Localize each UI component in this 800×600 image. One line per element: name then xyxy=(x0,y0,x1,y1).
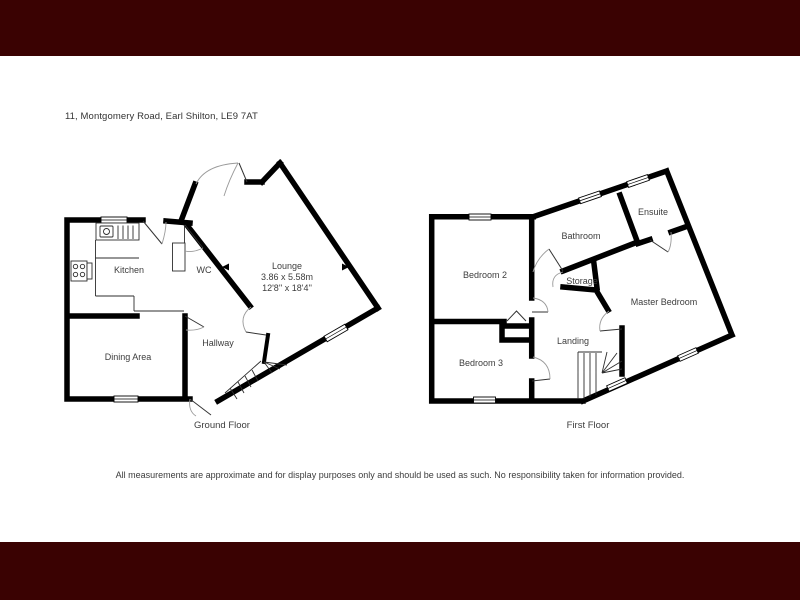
master-door-arc xyxy=(600,311,609,331)
kitchen-door-leaf xyxy=(143,221,162,244)
room-label-bedroom3: Bedroom 3 xyxy=(459,358,503,368)
kitchen-door-arc xyxy=(162,222,166,244)
ensuite-door-leaf xyxy=(650,240,668,252)
bathroom-door-arc xyxy=(533,249,549,272)
ground-floor-caption: Ground Floor xyxy=(194,420,250,431)
hob-side-unit xyxy=(87,263,92,279)
lounge-dimensions-metric: 3.86 x 5.58m xyxy=(261,272,313,282)
stairs-window xyxy=(607,378,628,392)
kitchen-window xyxy=(101,217,127,223)
front-door-leaf xyxy=(190,399,211,415)
kitchen-counter xyxy=(96,240,185,311)
stairs-stub-wall xyxy=(264,335,268,362)
lounge-dimensions-imperial: 12'8'' x 18'4'' xyxy=(262,283,312,293)
ground-floor-walls xyxy=(67,163,378,401)
lounge-hall-door-leaf xyxy=(246,332,266,335)
room-label-ensuite: Ensuite xyxy=(638,207,668,217)
bedroom2-door-arc xyxy=(533,298,548,312)
room-label-master-bedroom: Master Bedroom xyxy=(631,297,698,307)
bedroom3-door-arc xyxy=(533,357,550,379)
wc-door-leaf xyxy=(185,225,203,248)
room-label-lounge: Lounge xyxy=(272,261,302,271)
ground-floor-doors xyxy=(143,163,266,416)
room-label-bathroom: Bathroom xyxy=(561,231,600,241)
wc-fixture xyxy=(173,243,186,271)
bathroom-window xyxy=(579,191,602,204)
dining-door-arc xyxy=(186,327,204,330)
lounge-window xyxy=(324,324,348,342)
master-door-leaf xyxy=(600,329,622,331)
room-label-storage: Storage xyxy=(566,276,598,286)
room-label-hallway: Hallway xyxy=(202,338,234,348)
wc-door-arc xyxy=(185,248,203,252)
first-floor-plan: Bedroom 2 Bathroom Ensuite Storage Maste… xyxy=(432,171,732,431)
bedroom3-window xyxy=(474,397,496,403)
bathroom-door-leaf xyxy=(549,249,563,271)
hob xyxy=(71,261,87,281)
bedroom2-window xyxy=(469,214,491,220)
wardrobe-bifold-doors xyxy=(507,311,526,321)
lounge-hall-door-arc xyxy=(243,307,251,332)
room-label-dining-area: Dining Area xyxy=(105,352,152,362)
first-floor-caption: First Floor xyxy=(567,420,610,431)
ground-floor-windows xyxy=(101,217,348,402)
dining-window xyxy=(114,396,138,402)
floorplan-page: 11, Montgomery Road, Earl Shilton, LE9 7… xyxy=(0,0,800,600)
floorplan-canvas: Kitchen WC Lounge 3.86 x 5.58m 12'8'' x … xyxy=(0,0,800,600)
room-label-landing: Landing xyxy=(557,336,589,346)
room-label-wc: WC xyxy=(197,265,212,275)
master-bedroom-window xyxy=(678,348,699,362)
lounge-double-door-arc xyxy=(196,163,238,196)
room-label-kitchen: Kitchen xyxy=(114,265,144,275)
lounge-double-door-leaf xyxy=(239,163,247,182)
ground-floor-plan: Kitchen WC Lounge 3.86 x 5.58m 12'8'' x … xyxy=(67,163,378,431)
bedroom3-door-leaf xyxy=(532,379,550,381)
dining-door-leaf xyxy=(185,316,204,327)
disclaimer-text: All measurements are approximate and for… xyxy=(0,470,800,480)
bottom-banner xyxy=(0,542,800,600)
ensuite-window xyxy=(627,175,650,188)
room-label-bedroom2: Bedroom 2 xyxy=(463,270,507,280)
sink-bowl xyxy=(100,226,113,237)
